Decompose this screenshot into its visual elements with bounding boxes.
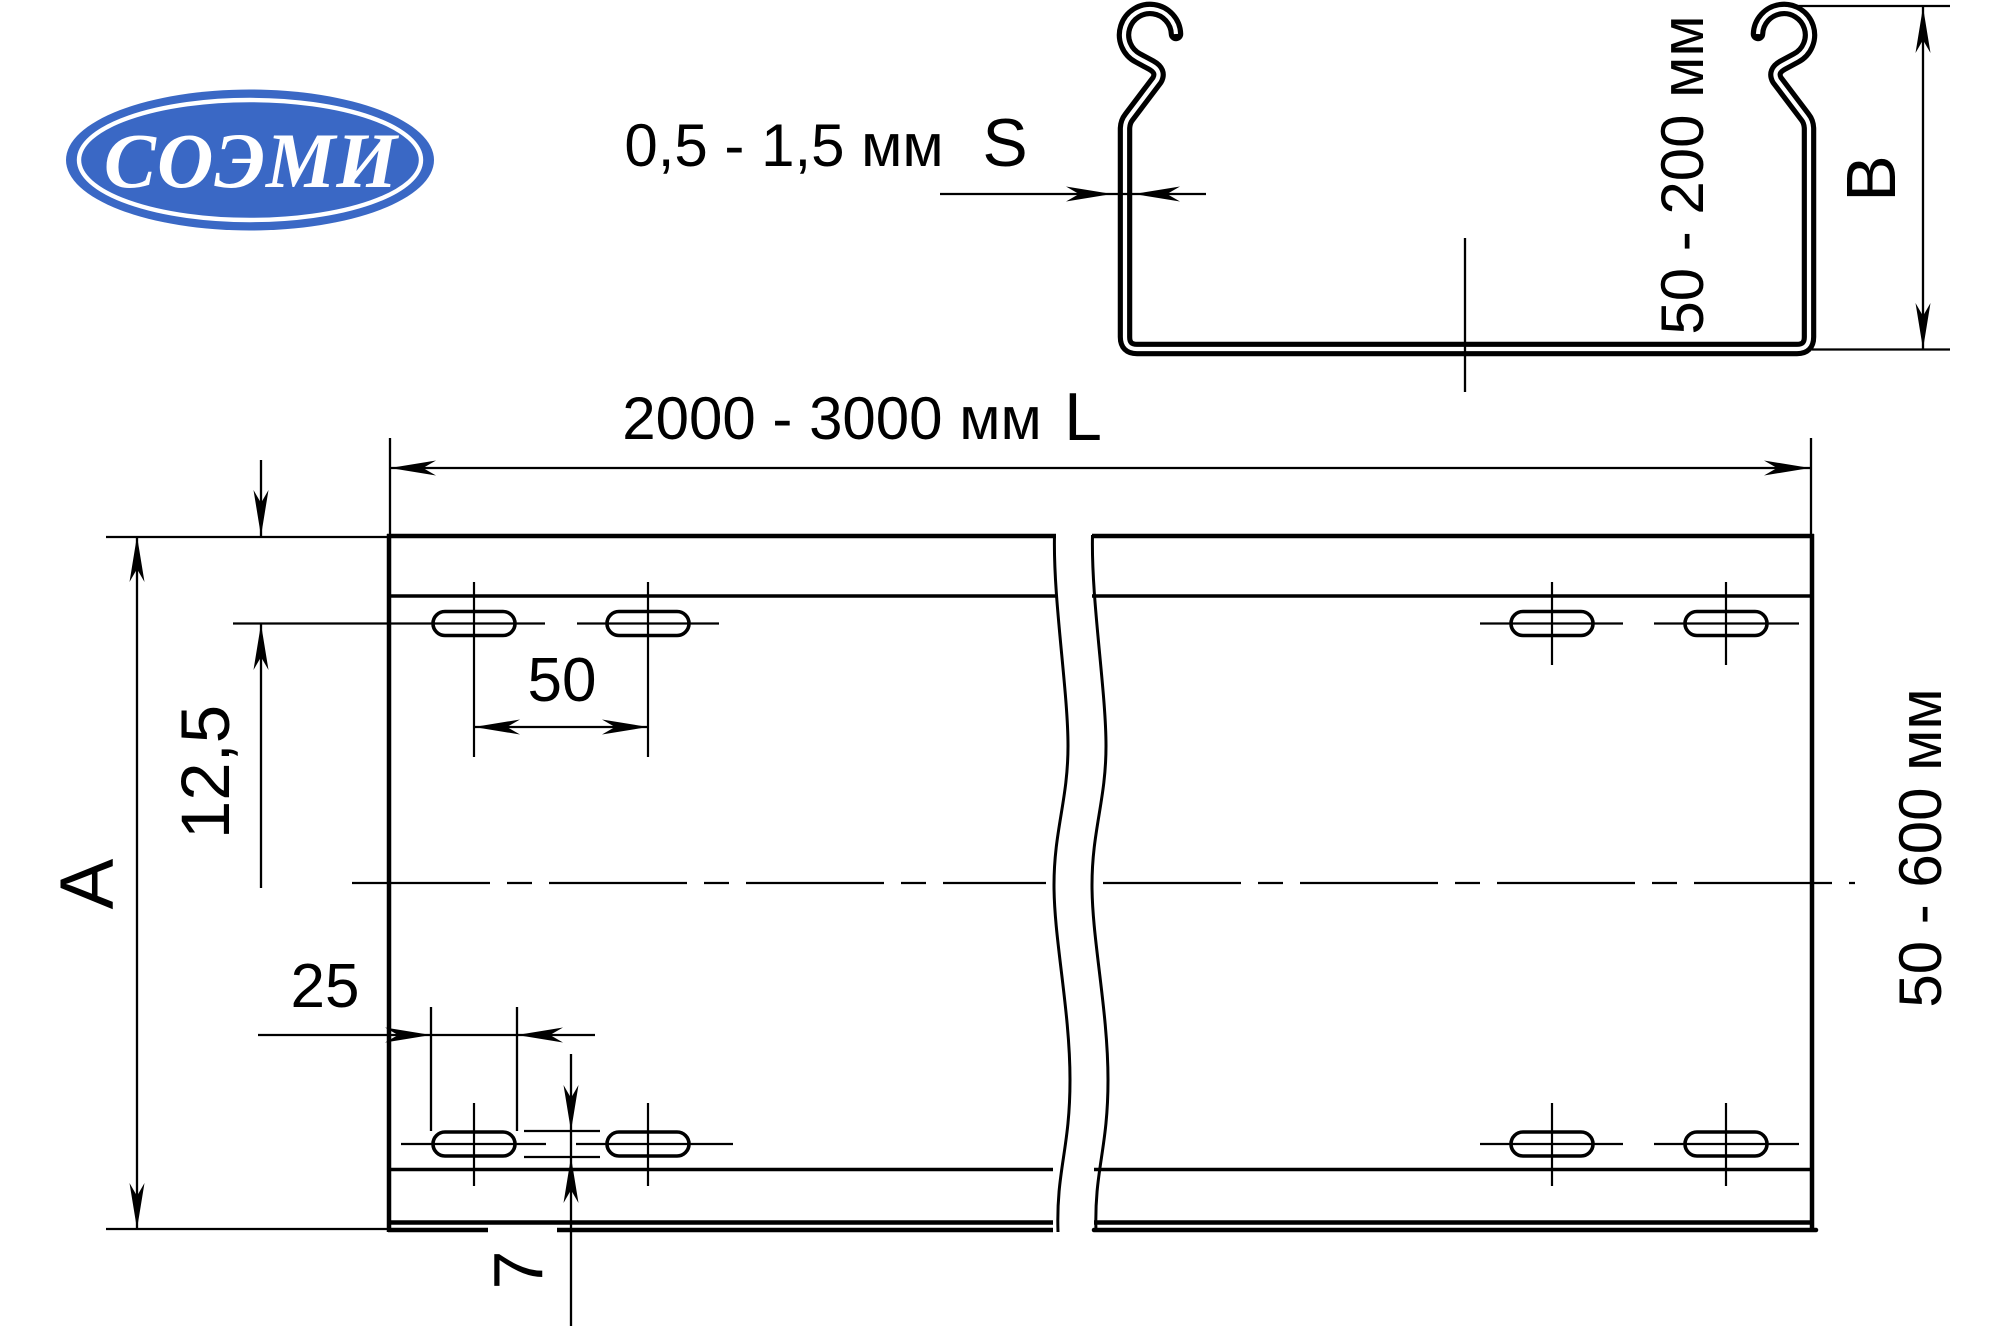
svg-text:7: 7 <box>479 1251 557 1290</box>
svg-text:50: 50 <box>528 646 597 715</box>
svg-text:12,5: 12,5 <box>167 705 244 839</box>
svg-text:L: L <box>1064 379 1102 455</box>
svg-text:50 - 600 мм: 50 - 600 мм <box>1887 688 1954 1007</box>
svg-text:A: A <box>45 858 130 909</box>
svg-text:СОЭМИ: СОЭМИ <box>104 117 399 204</box>
svg-text:2000 - 3000 мм: 2000 - 3000 мм <box>622 385 1041 452</box>
svg-text:0,5 - 1,5 мм: 0,5 - 1,5 мм <box>624 112 943 179</box>
svg-text:B: B <box>1832 155 1910 202</box>
svg-text:25: 25 <box>291 952 360 1021</box>
svg-text:S: S <box>982 105 1027 181</box>
svg-text:50 - 200 мм: 50 - 200 мм <box>1649 15 1716 334</box>
